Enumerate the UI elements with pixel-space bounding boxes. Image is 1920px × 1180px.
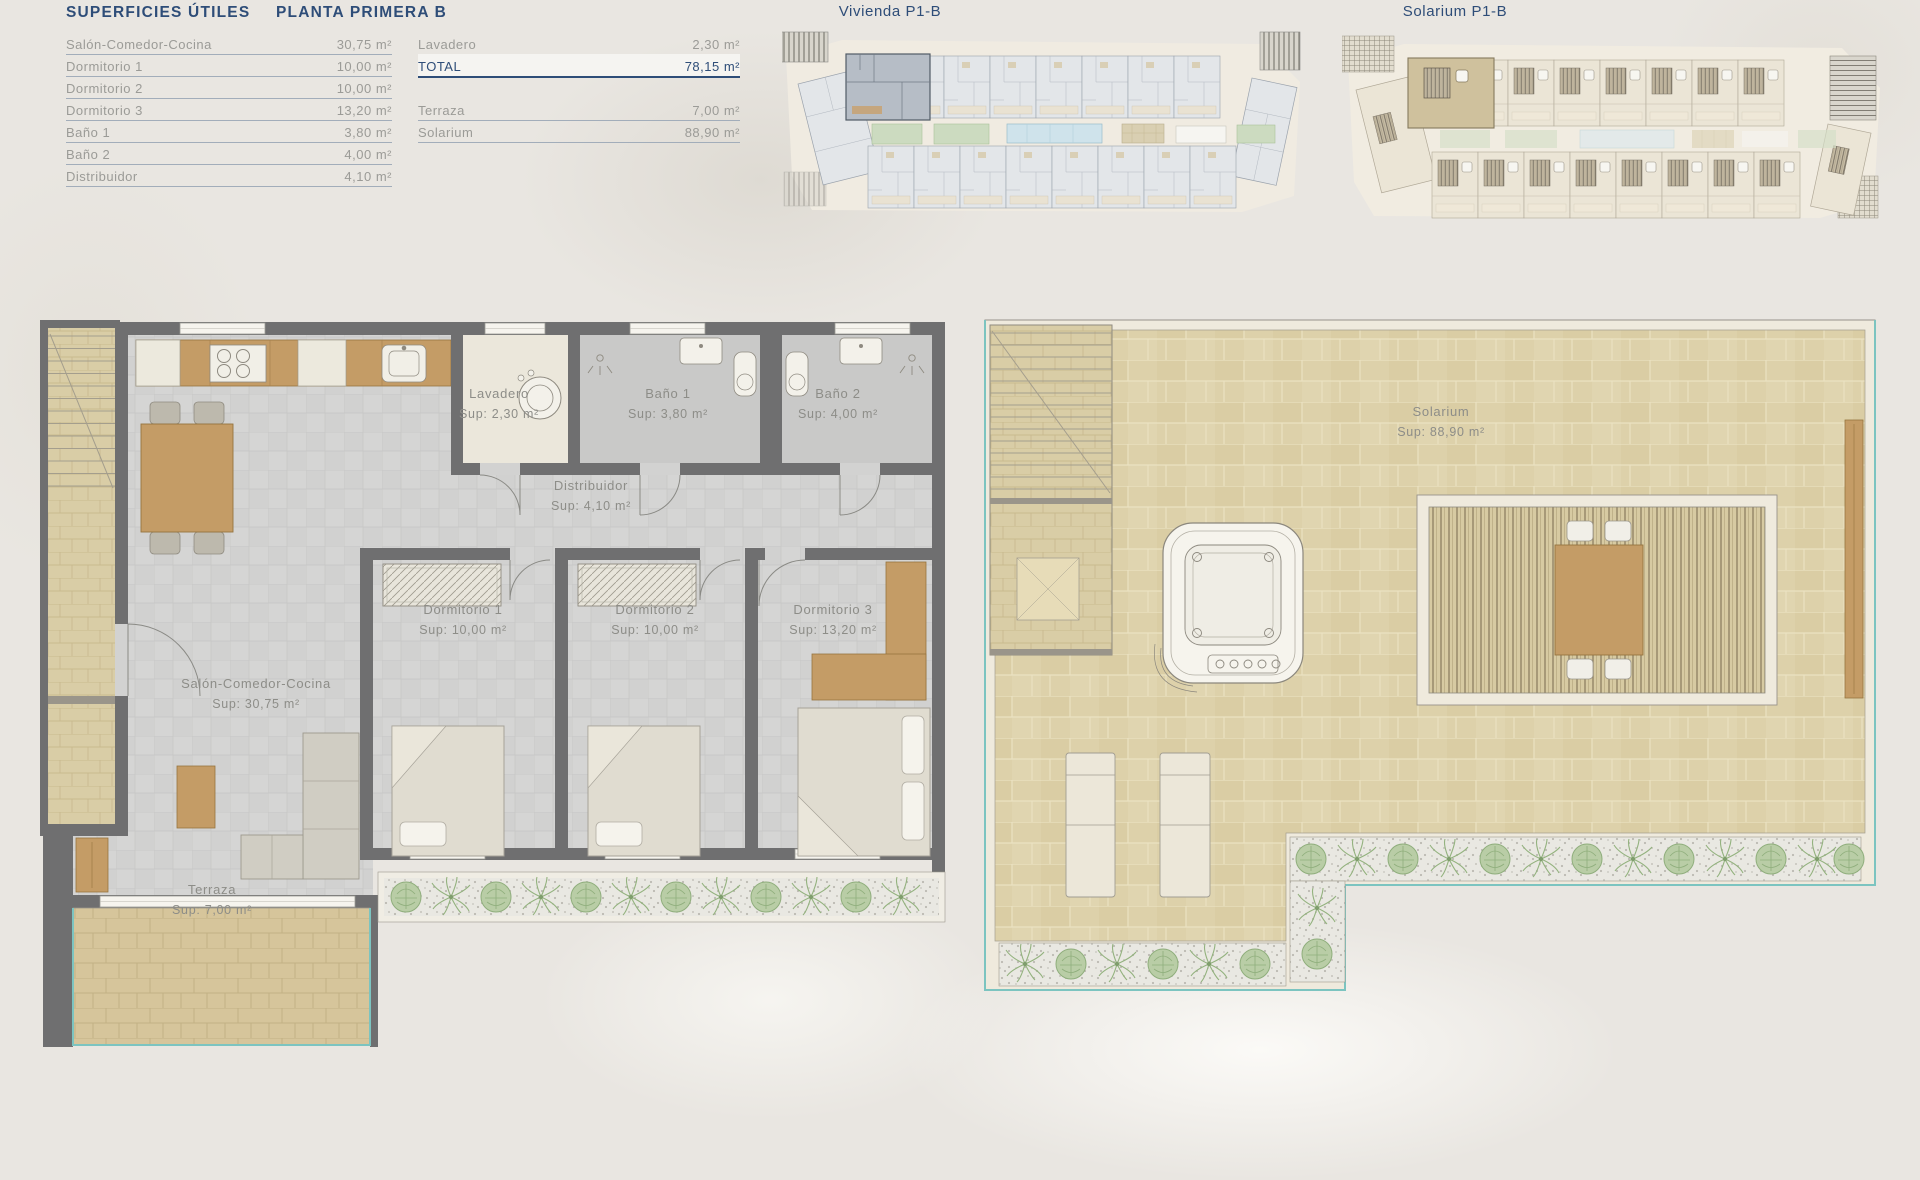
- row-label: Salón-Comedor-Cocina: [66, 37, 212, 52]
- room-area: Sup: 10,00 m²: [419, 620, 507, 640]
- legend-row-solarium: Solarium88,90 m²: [418, 120, 740, 143]
- row-value: 7,00 m²: [692, 103, 740, 118]
- row-value: 10,00 m²: [337, 59, 392, 74]
- row-value: 2,30 m²: [692, 37, 740, 52]
- row-label: Baño 2: [66, 147, 110, 162]
- plan-sheet: SUPERFICIES ÚTILES PLANTA PRIMERA B Saló…: [0, 0, 1920, 1080]
- room-label-solarium: Solarium Sup: 88,90 m²: [1397, 402, 1485, 442]
- row-label: Terraza: [418, 103, 465, 118]
- legend-row-distribuidor: Distribuidor4,10 m²: [66, 164, 392, 187]
- room-name: Dormitorio 1: [419, 600, 507, 620]
- legend-row-terraza: Terraza7,00 m²: [418, 98, 740, 121]
- room-label-dormitorio-1: Dormitorio 1 Sup: 10,00 m²: [419, 600, 507, 640]
- floorplan-vivienda-svg: [40, 318, 948, 1054]
- row-label: TOTAL: [418, 59, 461, 74]
- legend-row-bano-1: Baño 13,80 m²: [66, 120, 392, 143]
- row-label: Dormitorio 3: [66, 103, 143, 118]
- hot-tub: [1154, 523, 1303, 692]
- room-label-bano-2: Baño 2 Sup: 4,00 m²: [798, 384, 878, 424]
- highlighted-unit-solarium: [1408, 58, 1494, 128]
- legend-row-bano-2: Baño 24,00 m²: [66, 142, 392, 165]
- row-label: Distribuidor: [66, 169, 138, 184]
- room-name: Salón-Comedor-Cocina: [181, 674, 331, 694]
- legend-title: SUPERFICIES ÚTILES: [66, 4, 250, 22]
- room-area: Sup: 4,00 m²: [798, 404, 878, 424]
- legend-row-lavadero: Lavadero2,30 m²: [418, 32, 740, 55]
- row-value: 13,20 m²: [337, 103, 392, 118]
- room-name: Dormitorio 3: [789, 600, 877, 620]
- row-value: 3,80 m²: [344, 125, 392, 140]
- room-name: Baño 2: [798, 384, 878, 404]
- room-area: Sup: 30,75 m²: [181, 694, 331, 714]
- legend-row-total: TOTAL78,15 m²: [418, 54, 740, 78]
- floor-title: PLANTA PRIMERA B: [276, 4, 447, 22]
- room-area: Sup: 2,30 m²: [459, 404, 539, 424]
- overview-solarium-title: Solarium P1-B: [1403, 3, 1508, 20]
- row-value: 78,15 m²: [685, 59, 740, 74]
- row-value: 88,90 m²: [685, 125, 740, 140]
- overview-vivienda-title: Vivienda P1-B: [839, 3, 942, 20]
- room-name: Lavadero: [459, 384, 539, 404]
- room-area: Sup: 7,00 m²: [172, 900, 252, 920]
- room-area: Sup: 10,00 m²: [611, 620, 699, 640]
- legend-row-dormitorio-1: Dormitorio 110,00 m²: [66, 54, 392, 77]
- room-area: Sup: 13,20 m²: [789, 620, 877, 640]
- row-label: Dormitorio 1: [66, 59, 143, 74]
- room-label-terraza: Terraza Sup: 7,00 m²: [172, 880, 252, 920]
- room-label-dormitorio-2: Dormitorio 2 Sup: 10,00 m²: [611, 600, 699, 640]
- row-label: Solarium: [418, 125, 473, 140]
- room-label-dormitorio-3: Dormitorio 3 Sup: 13,20 m²: [789, 600, 877, 640]
- row-label: Lavadero: [418, 37, 476, 52]
- room-name: Dormitorio 2: [611, 600, 699, 620]
- room-name: Distribuidor: [551, 476, 631, 496]
- row-value: 10,00 m²: [337, 81, 392, 96]
- room-label-salon: Salón-Comedor-Cocina Sup: 30,75 m²: [181, 674, 331, 714]
- pergola-deck: [1417, 495, 1777, 705]
- row-label: Dormitorio 2: [66, 81, 143, 96]
- room-label-distribuidor: Distribuidor Sup: 4,10 m²: [551, 476, 631, 516]
- room-label-bano-1: Baño 1 Sup: 3,80 m²: [628, 384, 708, 424]
- legend-row-dormitorio-2: Dormitorio 210,00 m²: [66, 76, 392, 99]
- legend-row-dormitorio-3: Dormitorio 313,20 m²: [66, 98, 392, 121]
- room-name: Solarium: [1397, 402, 1485, 422]
- row-value: 4,00 m²: [344, 147, 392, 162]
- row-value: 4,10 m²: [344, 169, 392, 184]
- overview-solarium-svg: [1342, 28, 1886, 232]
- overview-vivienda-svg: [782, 26, 1302, 224]
- room-name: Baño 1: [628, 384, 708, 404]
- floorplan-vivienda: [40, 318, 948, 1054]
- legend-row-salon: Salón-Comedor-Cocina30,75 m²: [66, 32, 392, 55]
- highlighted-unit-vivienda: [846, 54, 930, 120]
- overview-solarium-plan: [1342, 28, 1886, 232]
- room-name: Terraza: [172, 880, 252, 900]
- room-area: Sup: 4,10 m²: [551, 496, 631, 516]
- row-value: 30,75 m²: [337, 37, 392, 52]
- row-label: Baño 1: [66, 125, 110, 140]
- overview-vivienda-plan: [782, 26, 1302, 224]
- room-label-lavadero: Lavadero Sup: 2,30 m²: [459, 384, 539, 424]
- room-area: Sup: 3,80 m²: [628, 404, 708, 424]
- room-area: Sup: 88,90 m²: [1397, 422, 1485, 442]
